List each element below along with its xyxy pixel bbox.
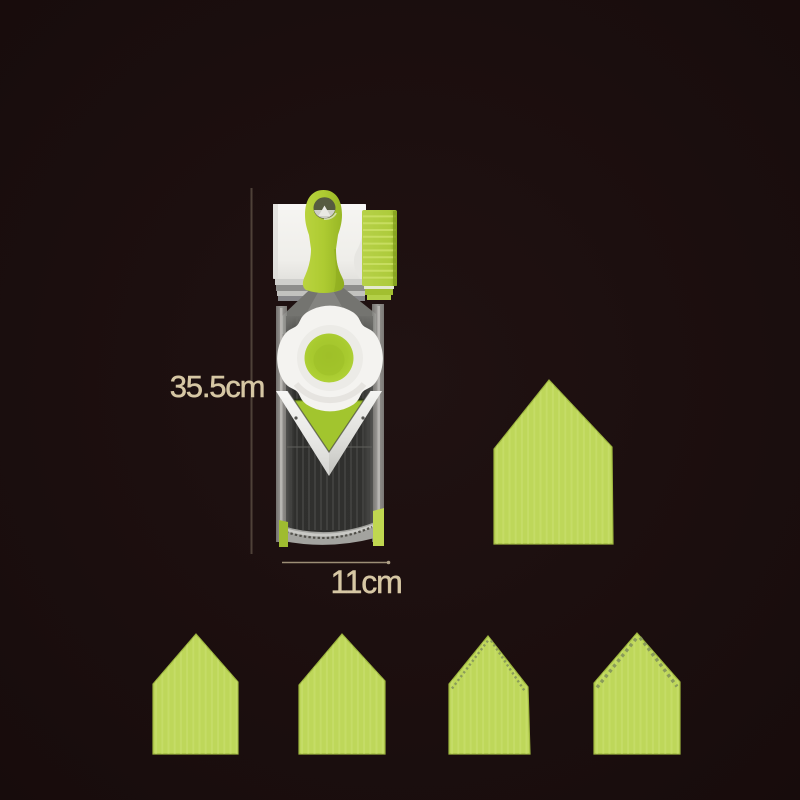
svg-text:35.5cm: 35.5cm (170, 369, 264, 404)
svg-text:11cm: 11cm (330, 564, 401, 600)
